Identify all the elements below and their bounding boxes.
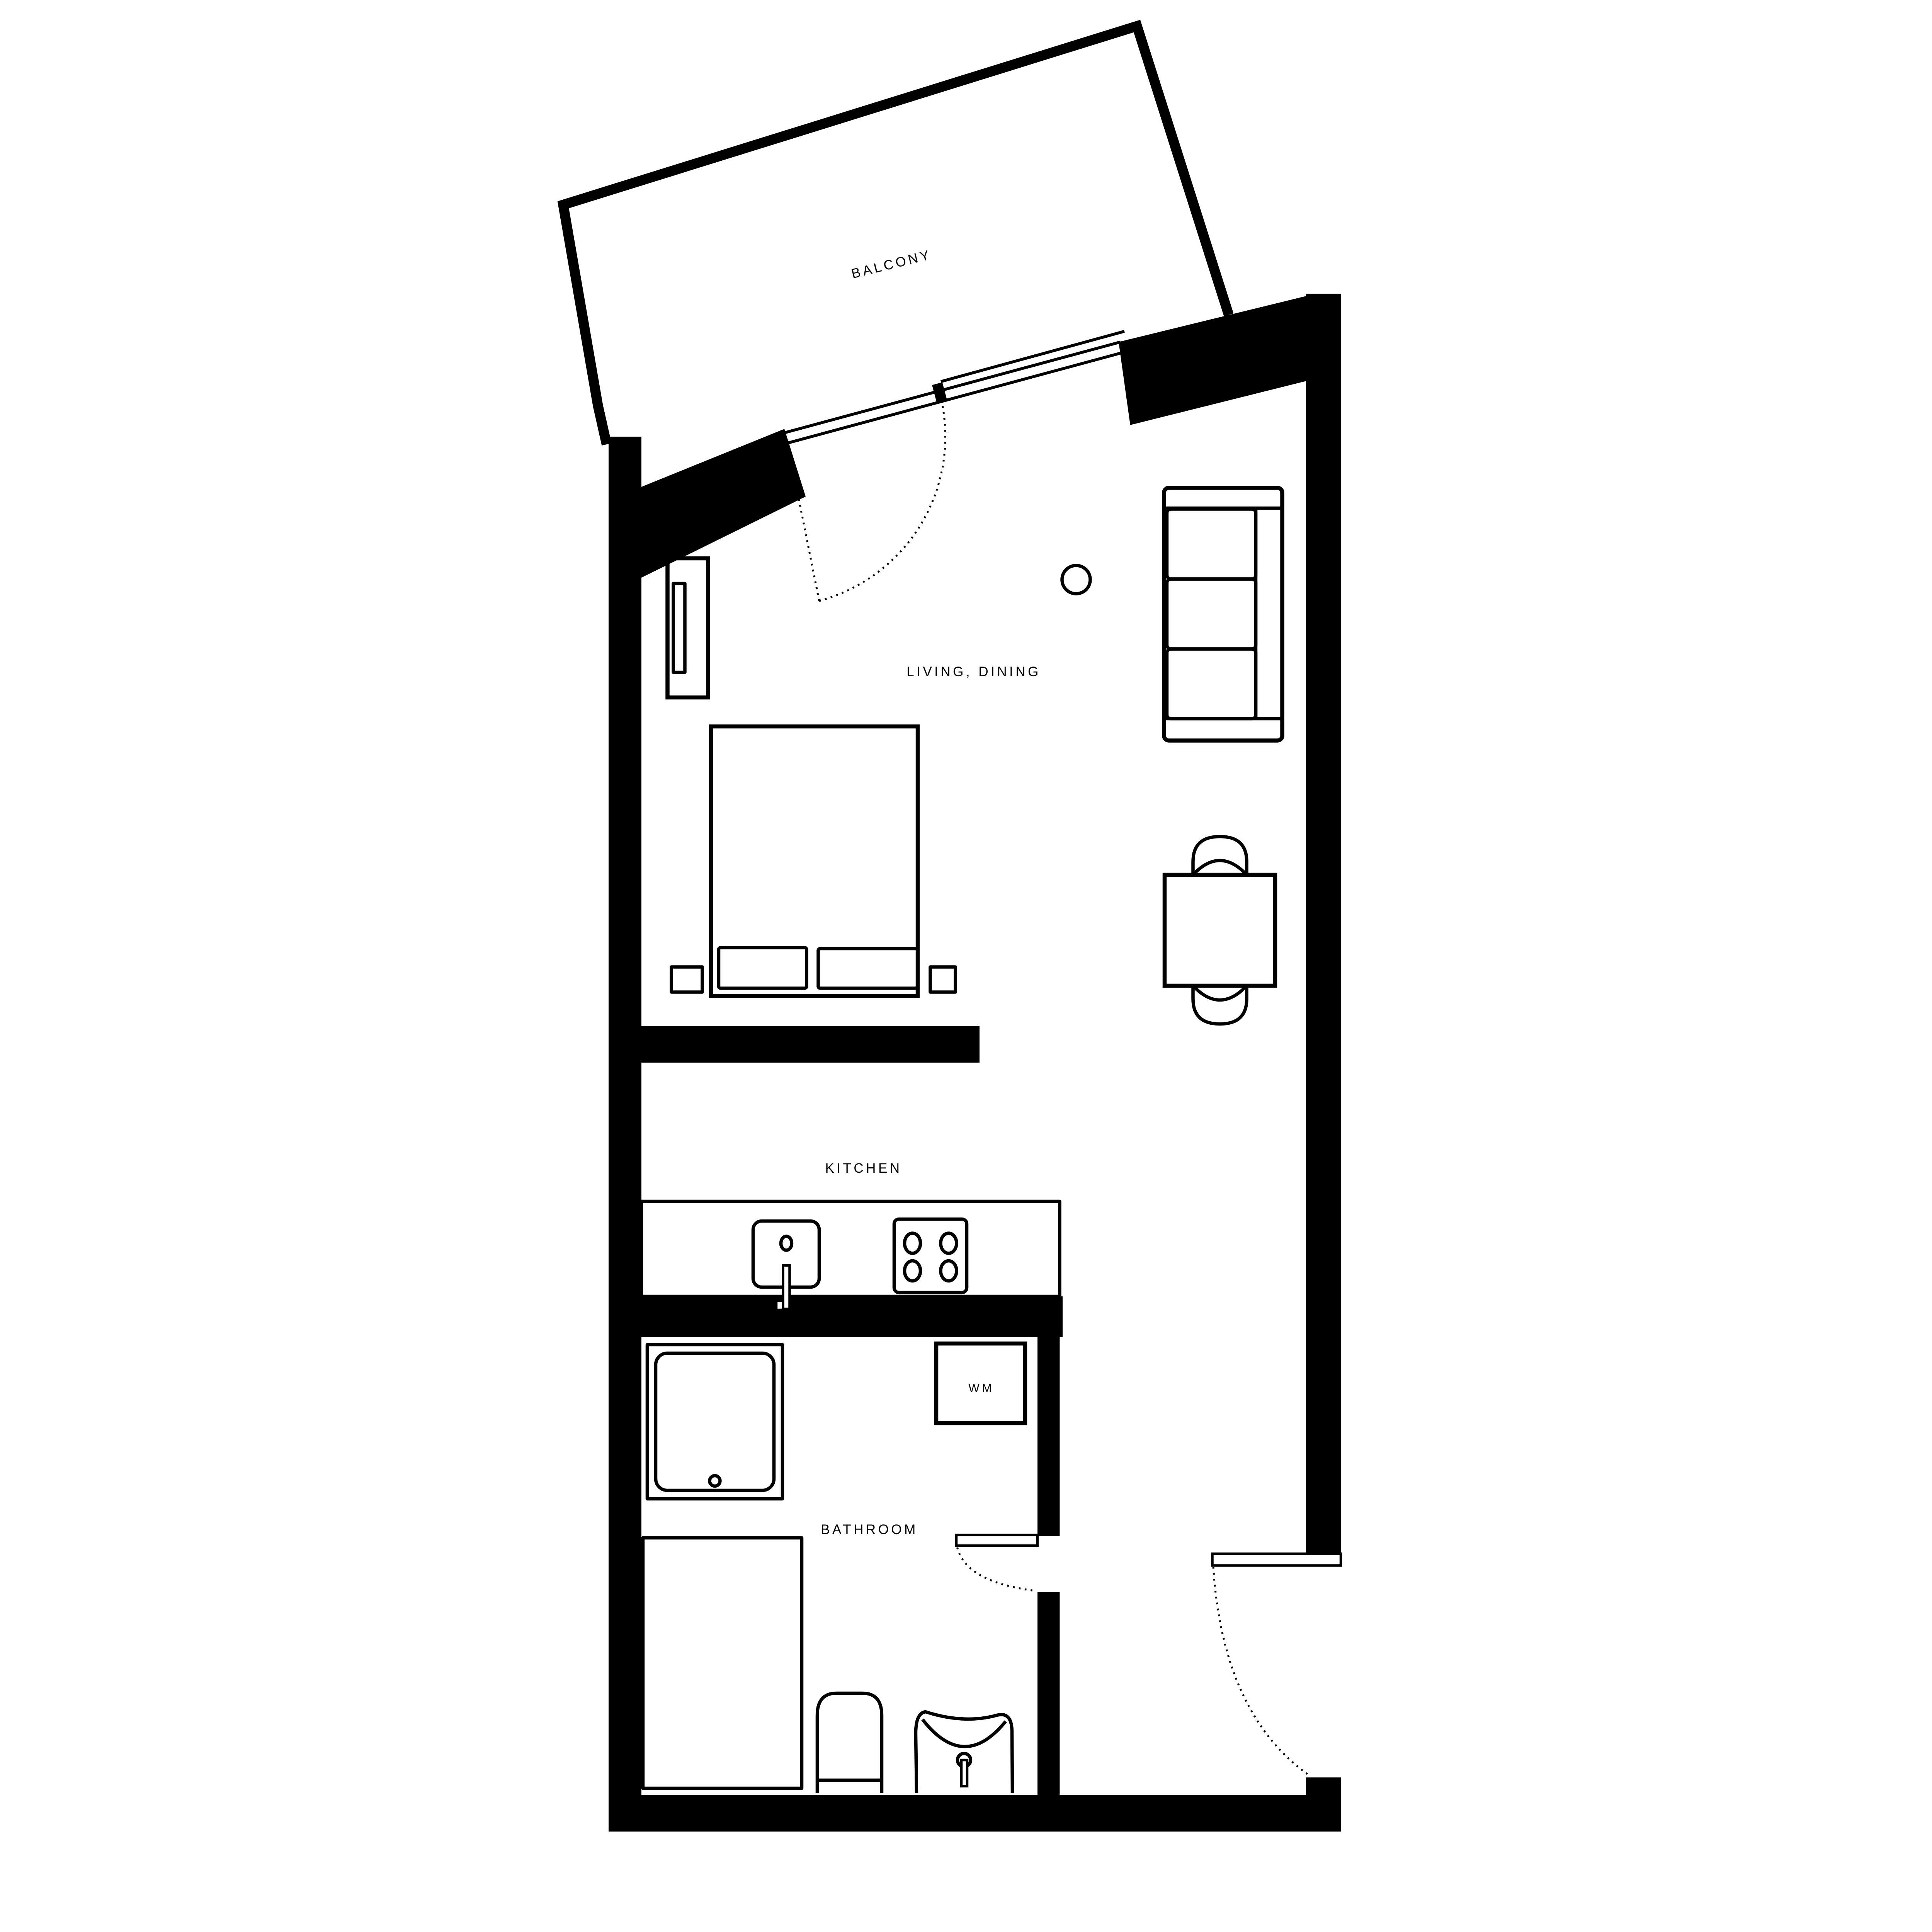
burner-bottom-left bbox=[905, 1261, 920, 1281]
living-dining-label: LIVING, DINING bbox=[906, 664, 1041, 679]
toilet bbox=[817, 1693, 882, 1793]
sink-faucet-valve bbox=[776, 1301, 783, 1310]
dining-set bbox=[1165, 837, 1275, 1024]
door-stop-block bbox=[932, 382, 947, 402]
chair-seat-curve bbox=[1193, 986, 1247, 1000]
nightstand-left bbox=[672, 967, 702, 992]
exterior-wall-bottom bbox=[609, 1795, 1341, 1832]
bathroom-door bbox=[956, 1535, 1037, 1591]
balcony-sliding-door bbox=[784, 332, 1124, 601]
plant-icon bbox=[1062, 566, 1090, 594]
shower-tray bbox=[656, 1353, 774, 1490]
sink-drain bbox=[781, 1236, 792, 1250]
washing-machine-label: WM bbox=[968, 1382, 994, 1395]
walls bbox=[609, 294, 1341, 1832]
bathroom-cabinet bbox=[643, 1538, 802, 1788]
entrance-door-swing-arc bbox=[1213, 1567, 1311, 1777]
interior-wall-bed-divider bbox=[641, 1026, 980, 1063]
wardrobe-door-panel bbox=[673, 583, 685, 672]
bathroom-door-swing-arc bbox=[957, 1548, 1037, 1591]
dining-table bbox=[1165, 875, 1275, 986]
sofa-cushion-2 bbox=[1167, 579, 1256, 649]
burner-top-right bbox=[941, 1233, 957, 1253]
wash-basin bbox=[916, 1712, 1012, 1793]
bed bbox=[672, 726, 956, 996]
bed-pillow-right bbox=[818, 949, 918, 988]
exterior-wall-right-lower bbox=[1306, 1777, 1341, 1832]
exterior-wall-left bbox=[609, 437, 641, 1808]
burner-bottom-right bbox=[941, 1261, 957, 1281]
sofa-cushion-1 bbox=[1167, 509, 1256, 579]
washing-machine: WM bbox=[936, 1344, 1025, 1423]
nightstand-right bbox=[930, 967, 956, 992]
basin-bowl bbox=[923, 1719, 1006, 1747]
living-dining-room: LIVING, DINING bbox=[668, 488, 1282, 1024]
bathroom-door-leaf bbox=[956, 1535, 1037, 1546]
kitchen-label: KITCHEN bbox=[825, 1161, 902, 1176]
sofa-outline bbox=[1164, 488, 1282, 741]
sofa bbox=[1164, 488, 1282, 741]
entrance-door-leaf bbox=[1213, 1554, 1341, 1566]
shower bbox=[647, 1345, 782, 1499]
toilet-outline bbox=[817, 1693, 882, 1793]
kitchen-room: KITCHEN bbox=[641, 1161, 1060, 1310]
interior-wall-bathroom-upper bbox=[1037, 1337, 1060, 1536]
basin-faucet-stem bbox=[961, 1760, 967, 1786]
dining-chair-top bbox=[1193, 837, 1247, 875]
chair-seat-curve bbox=[1193, 861, 1247, 875]
bed-frame bbox=[711, 726, 918, 996]
floor-plan-canvas: BALCONY LIVING, DINING bbox=[0, 0, 1932, 1932]
dining-chair-bottom bbox=[1193, 986, 1247, 1024]
balcony-label: BALCONY bbox=[850, 247, 933, 281]
interior-wall-kitchen-divider bbox=[641, 1296, 1063, 1337]
bed-pillow-left bbox=[719, 948, 807, 988]
floor-plan-page: BALCONY LIVING, DINING bbox=[0, 0, 1932, 1932]
glazing-line-fixed-panel bbox=[941, 332, 1124, 382]
exterior-wall-top-left-section bbox=[641, 429, 806, 578]
sofa-cushion-3 bbox=[1167, 649, 1256, 719]
wardrobe bbox=[668, 558, 708, 697]
burner-top-left bbox=[905, 1233, 920, 1253]
interior-wall-bathroom-lower bbox=[1037, 1592, 1060, 1795]
kitchen-counter bbox=[641, 1201, 1060, 1296]
glazing-line-inner bbox=[786, 353, 1122, 444]
shower-drain bbox=[710, 1476, 720, 1486]
exterior-wall-right-upper bbox=[1306, 294, 1341, 1553]
stove-outline bbox=[894, 1219, 967, 1293]
entrance-door bbox=[1213, 1554, 1341, 1777]
stove bbox=[894, 1219, 967, 1293]
bathroom-room: BATHROOM WM bbox=[643, 1344, 1025, 1793]
bathroom-label: BATHROOM bbox=[821, 1522, 918, 1537]
glazing-line-outer bbox=[784, 342, 1121, 433]
